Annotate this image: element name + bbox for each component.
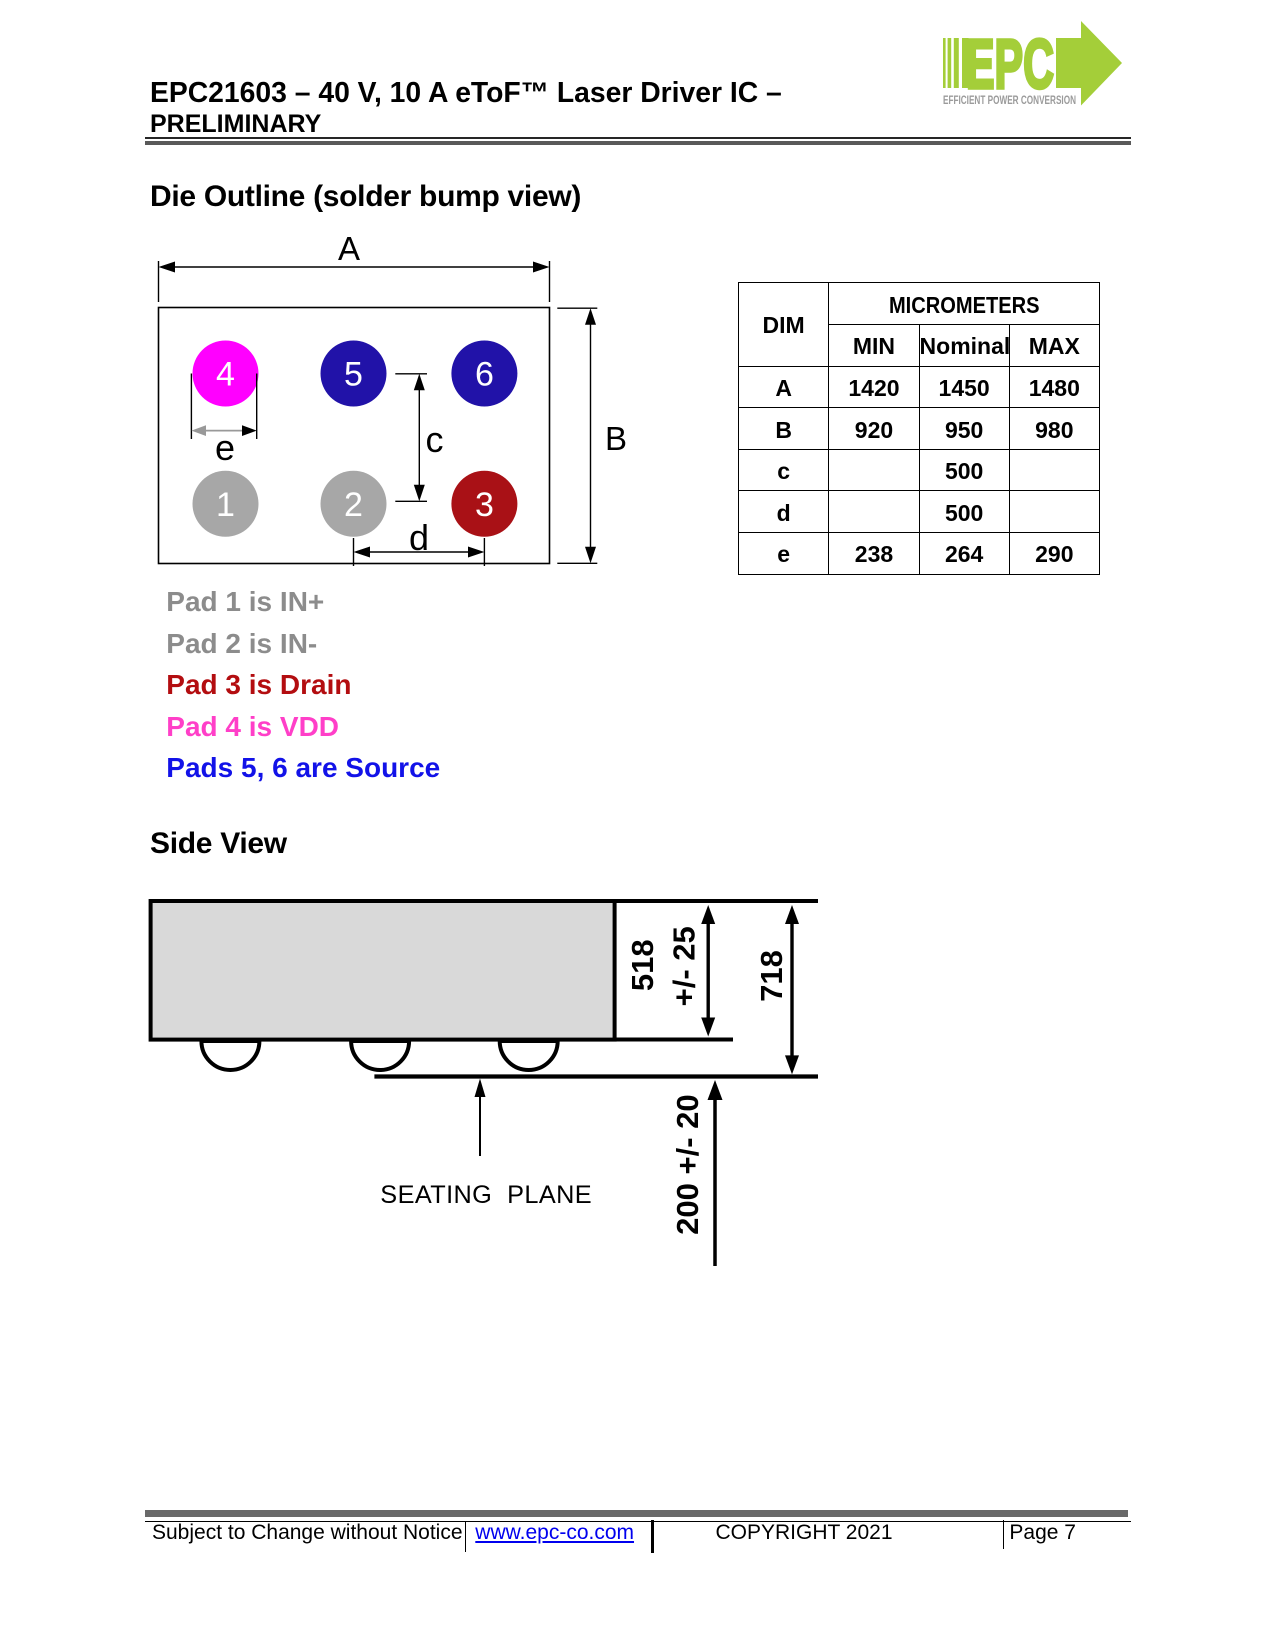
svg-text:d: d (409, 517, 429, 558)
svg-text:718: 718 (754, 950, 789, 1002)
svg-text:e: e (215, 427, 235, 468)
svg-text:2: 2 (344, 486, 363, 524)
svg-text:B: B (605, 420, 627, 457)
svg-text:5: 5 (344, 356, 363, 394)
svg-text:3: 3 (475, 486, 494, 524)
svg-text:+/- 25: +/- 25 (666, 926, 701, 1006)
svg-text:c: c (426, 419, 444, 460)
svg-text:A: A (338, 230, 360, 267)
svg-text:6: 6 (475, 356, 494, 394)
svg-text:EFFICIENT POWER CONVERSION: EFFICIENT POWER CONVERSION (943, 95, 1076, 107)
svg-text:EPC: EPC (966, 25, 1054, 103)
svg-text:518: 518 (625, 939, 660, 991)
svg-text:4: 4 (216, 356, 235, 394)
svg-text:1: 1 (216, 486, 235, 524)
svg-text:SEATING PLANE: SEATING PLANE (380, 1181, 592, 1209)
svg-text:200 +/- 20: 200 +/- 20 (670, 1094, 705, 1234)
